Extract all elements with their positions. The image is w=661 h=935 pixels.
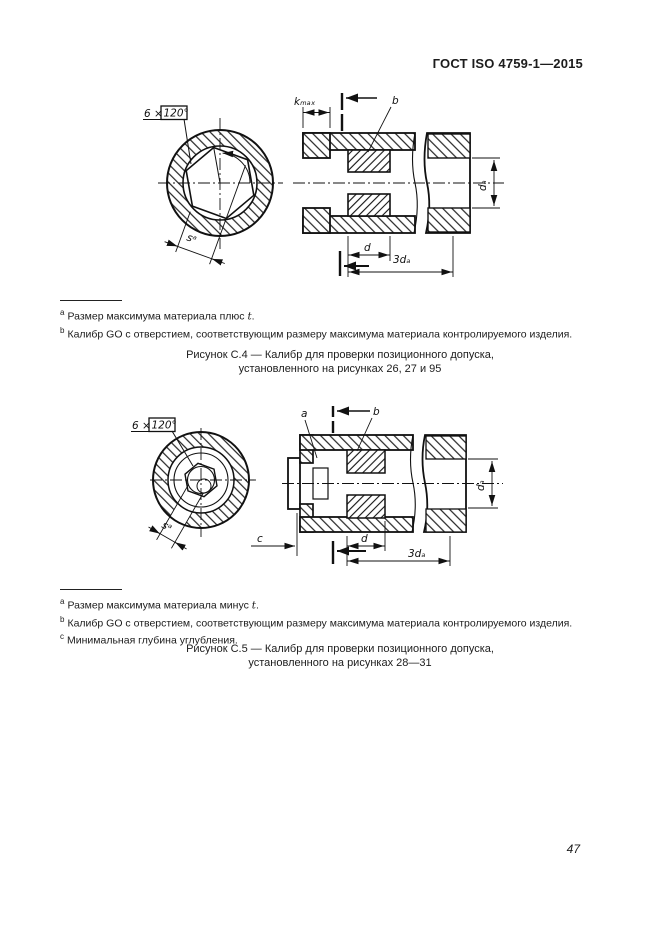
c4-label-d: d [364,242,371,254]
footnote-line: aРазмер максимума материала плюс t. [60,306,620,324]
c4-label-angle: 120° [164,108,189,120]
figure-c4-caption: Рисунок С.4 — Калибр для проверки позици… [60,348,620,376]
c5-label-b: b [373,406,380,418]
figure-c4-footnotes: aРазмер максимума материала плюс t. bКал… [60,300,620,341]
c4-label-da: dₐ [477,180,489,191]
c5-label-s: sᵃ [160,519,174,534]
c4-label-count: 6 × [144,108,163,120]
figure-c5-drawing: 6 × 120° sᵃ [120,398,520,578]
c5-label-d: d [361,533,368,545]
c4-label-3da: 3dₐ [393,254,410,266]
footnote-rule [60,589,122,590]
c5-go-plug [347,450,385,473]
figure-c4-drawing: 6 × 120° sᵃ [120,88,520,288]
c4-end-view [143,106,283,264]
footnote-line: bКалибр GO с отверстием, соответствующим… [60,324,620,342]
caption-line: Рисунок С.4 — Калибр для проверки позици… [60,348,620,362]
c4-label-s: sᵃ [185,232,198,247]
c5-label-angle: 120° [152,420,177,432]
footnote-line: aРазмер максимума материала минус t. [60,595,620,613]
c4-go-plug [348,150,390,172]
c5-label-c: c [257,533,263,545]
c4-label-b: b [392,95,399,107]
c5-label-da: dₐ [475,480,487,491]
footnote-rule [60,300,122,301]
caption-line: Рисунок С.5 — Калибр для проверки позици… [60,642,620,656]
page-header: ГОСТ ISO 4759-1—2015 [433,56,583,71]
footnote-line: bКалибр GO с отверстием, соответствующим… [60,613,620,631]
c5-label-count: 6 × [132,420,151,432]
c5-label-a: a [301,408,307,420]
caption-line: установленного на рисунках 26, 27 и 95 [60,362,620,376]
caption-line: установленного на рисунках 28—31 [60,656,620,670]
page-number: 47 [567,842,580,856]
c4-label-kmax: kₘₐₓ [294,96,316,108]
c5-label-3da: 3dₐ [408,548,425,560]
figure-c5-footnotes: aРазмер максимума материала минус t. bКа… [60,589,620,648]
document-page: ГОСТ ISO 4759-1—2015 [0,0,661,935]
c5-end-view [131,418,256,549]
figure-c5-caption: Рисунок С.5 — Калибр для проверки позици… [60,642,620,670]
c4-section-view [293,93,504,277]
c5-section-view [251,406,503,566]
